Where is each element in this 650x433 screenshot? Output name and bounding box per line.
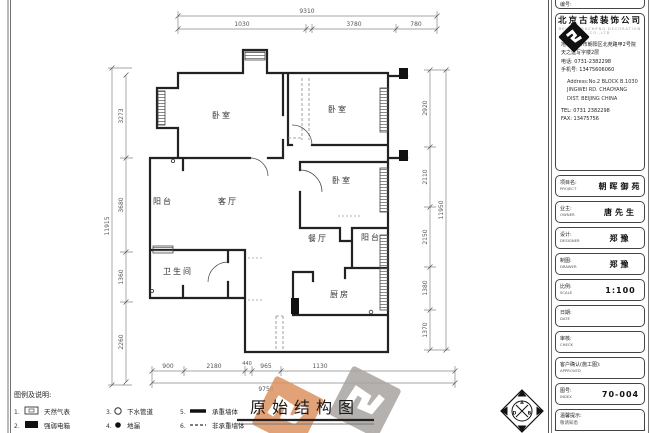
- fax-line: FAX: 13475756: [561, 115, 639, 123]
- dim-right-seg3: 2150: [422, 229, 429, 244]
- dim-right-seg1: 2920: [422, 100, 429, 115]
- dim-left-overall: 11915: [104, 216, 111, 235]
- dim-right-seg2: 2110: [422, 169, 429, 184]
- structural-columns: [291, 68, 408, 314]
- compass-badge: A D B: [501, 390, 543, 432]
- row-check-label-en: CHECK: [560, 343, 597, 347]
- row-owner-label-en: OWNER: [560, 213, 597, 217]
- row-designer-value: 郑豫: [597, 233, 644, 244]
- company-box: 北京古城装饰公司 BEIJING GUCHENG DECORATION CO.,…: [555, 13, 645, 171]
- legend: 图例及说明: 1. 天然气表 3. 下水管道 5. 承重墙体 2. 强弱电箱 4…: [14, 390, 245, 430]
- dim-right-seg4: 1380: [422, 280, 429, 295]
- dim-left-seg2: 3680: [118, 197, 125, 212]
- legend-label-5: 承重墙体: [212, 407, 239, 416]
- row-scale-label-en: SCALE: [560, 291, 597, 295]
- row-approved: 客户确认(施工图):APPROVED: [555, 357, 645, 379]
- legend-no-6: 6.: [180, 423, 186, 430]
- dim-bottom-seg1: 900: [162, 363, 174, 370]
- note-line-2: 敬请知悉: [556, 419, 644, 426]
- dim-right-seg5: 1370: [422, 322, 429, 337]
- row-owner-value: 唐先生: [597, 207, 644, 218]
- legend-no-1: 1.: [14, 409, 20, 416]
- room-label-living: 客厅: [218, 196, 238, 206]
- row-project: 项目名:PROJECT 朝晖御苑: [555, 175, 645, 197]
- legend-title: 图例及说明:: [14, 390, 51, 399]
- wall-lines: [150, 50, 407, 352]
- dim-left-seg1: 3273: [118, 108, 125, 123]
- room-label-dining: 餐厅: [308, 234, 328, 243]
- legend-label-4: 地漏: [127, 421, 141, 430]
- row-drawer: 制图:DRAWER 郑豫: [555, 253, 645, 275]
- dim-top-seg1: 1030: [234, 21, 249, 28]
- room-label-balcony-left: 阳台: [153, 196, 173, 206]
- legend-no-4: 4.: [106, 423, 112, 430]
- drawing-title-block: 原始结构图: [237, 398, 374, 424]
- serial-label: 编号:: [560, 2, 572, 8]
- room-label-bathroom: 卫生间: [163, 266, 193, 276]
- badge-letter-right: B: [528, 411, 532, 417]
- row-index-label-en: INDEX: [560, 395, 597, 399]
- room-label-bedroom-3: 卧室: [332, 175, 352, 185]
- row-owner: 业主:OWNER 唐先生: [555, 201, 645, 223]
- badge-letter-top: A: [520, 400, 524, 406]
- company-logo-icon: [556, 19, 592, 55]
- room-labels: 卧室 卧室 卧室 阳台 客厅 餐厅 阳台 卫生间 厨房: [153, 104, 381, 299]
- room-label-balcony-right: 阳台: [361, 232, 381, 242]
- row-index-value: 70-004: [597, 390, 644, 399]
- room-label-bedroom-1: 卧室: [212, 110, 232, 120]
- room-label-bedroom-2: 卧室: [328, 104, 348, 114]
- row-project-label-en: PROJECT: [560, 187, 597, 191]
- legend-no-5: 5.: [180, 409, 186, 416]
- row-designer-label-en: DESIGNER: [560, 239, 597, 243]
- dashed-lines: [248, 78, 362, 350]
- room-label-kitchen: 厨房: [330, 289, 350, 299]
- legend-no-3: 3.: [106, 409, 112, 416]
- legend-label-6: 非承重墙体: [212, 421, 245, 430]
- title-block-border-line: [551, 0, 552, 433]
- row-designer: 设计:DESIGNER 郑豫: [555, 227, 645, 249]
- gas-meter-icon: [25, 407, 38, 414]
- drain-pipe-icon: [115, 408, 121, 414]
- tel-line: TEL: 0731 2382298: [561, 107, 639, 115]
- dim-top-overall: 9310: [299, 8, 314, 15]
- floor-plan-walls: [150, 50, 407, 352]
- badge-letter-left: D: [513, 411, 517, 417]
- floor-drain-icon: [115, 422, 121, 428]
- cad-drawing-page: 卧室 卧室 卧室 阳台 客厅 餐厅 阳台 卫生间 厨房 9310 1030 37…: [0, 0, 650, 433]
- address-en-line: Address:No.2 BLOCK B.1030: [561, 78, 639, 86]
- row-drawer-value: 郑豫: [597, 259, 644, 270]
- dim-right-overall: 11950: [438, 200, 445, 219]
- legend-label-1: 天然气表: [44, 407, 71, 416]
- dim-bottom-seg4: 965: [260, 363, 272, 370]
- row-date: 日期:DATE: [555, 305, 645, 327]
- row-drawer-label-en: DRAWER: [560, 265, 597, 269]
- row-project-value: 朝晖御苑: [597, 181, 644, 192]
- dim-bottom-seg5: 1130: [312, 363, 327, 370]
- title-block-panel: 编号: 北京古城装饰公司 BEIJING GUCHENG DECORATION …: [548, 0, 649, 433]
- row-check: 审核:CHECK: [555, 331, 645, 353]
- dim-bottom-seg2: 2180: [206, 363, 221, 370]
- dim-bottom-seg3: 440: [242, 361, 252, 367]
- row-approved-label-en: APPROVED: [560, 369, 612, 373]
- mobile-line: 手机号: 13475606060: [561, 66, 639, 74]
- row-scale: 比例:SCALE 1:100: [555, 279, 645, 301]
- dim-left-seg3: 1360: [118, 269, 125, 284]
- dim-top-seg3: 780: [410, 21, 422, 28]
- dim-left-seg4: 2260: [118, 334, 125, 349]
- row-date-label-en: DATE: [560, 317, 597, 321]
- serial-box: 编号:: [555, 0, 645, 9]
- note-line-1: 温馨提示:: [556, 410, 644, 419]
- phone-line: 电话: 0731-2382298: [561, 58, 639, 66]
- address-en-line: DIST. BEIJING CHINA: [561, 95, 639, 103]
- sheet-frame: [8, 0, 11, 433]
- dim-top-seg2: 3780: [346, 21, 361, 28]
- address-en-line: JINGWEI RD. CHAOYANG: [561, 86, 639, 94]
- note-box: 温馨提示: 敬请知悉: [555, 409, 645, 431]
- legend-no-2: 2.: [14, 423, 20, 430]
- row-index: 图号:INDEX 70-004: [555, 383, 645, 405]
- legend-label-2: 强弱电箱: [44, 421, 71, 430]
- legend-label-3: 下水管道: [127, 407, 154, 416]
- row-scale-value: 1:100: [597, 286, 644, 295]
- drawing-title: 原始结构图: [250, 398, 360, 417]
- power-box-icon: [25, 421, 38, 428]
